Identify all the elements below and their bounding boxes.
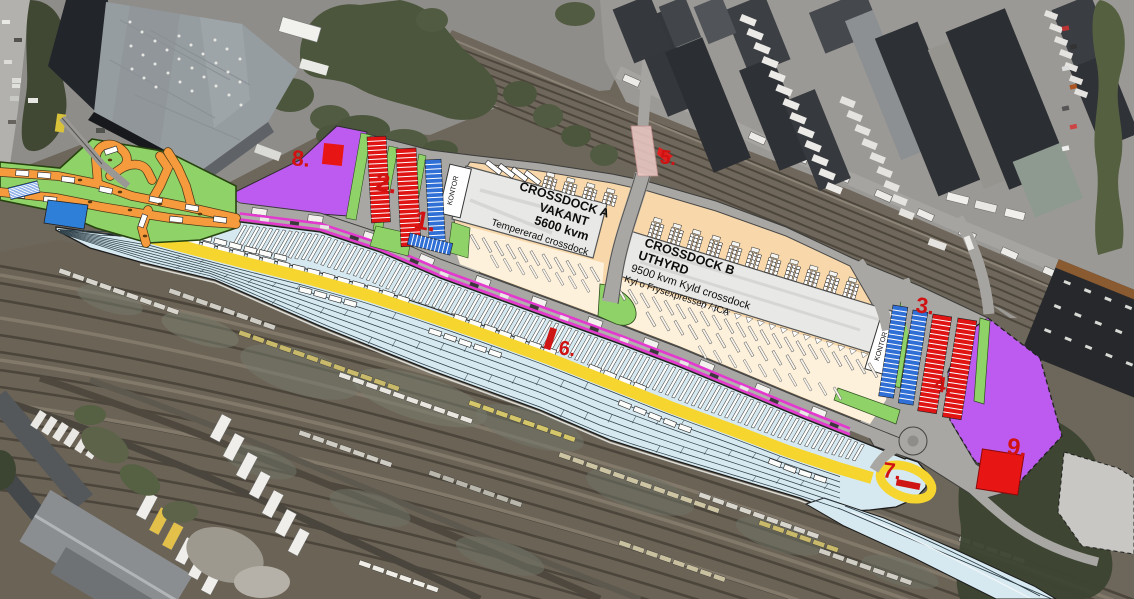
svg-text:5.: 5. xyxy=(658,146,678,170)
svg-text:4.: 4. xyxy=(932,371,954,398)
svg-text:3.: 3. xyxy=(914,292,936,319)
svg-text:9.: 9. xyxy=(1005,433,1029,463)
svg-text:8.: 8. xyxy=(290,145,311,172)
svg-text:7.: 7. xyxy=(881,457,903,484)
svg-text:6.: 6. xyxy=(557,337,577,361)
